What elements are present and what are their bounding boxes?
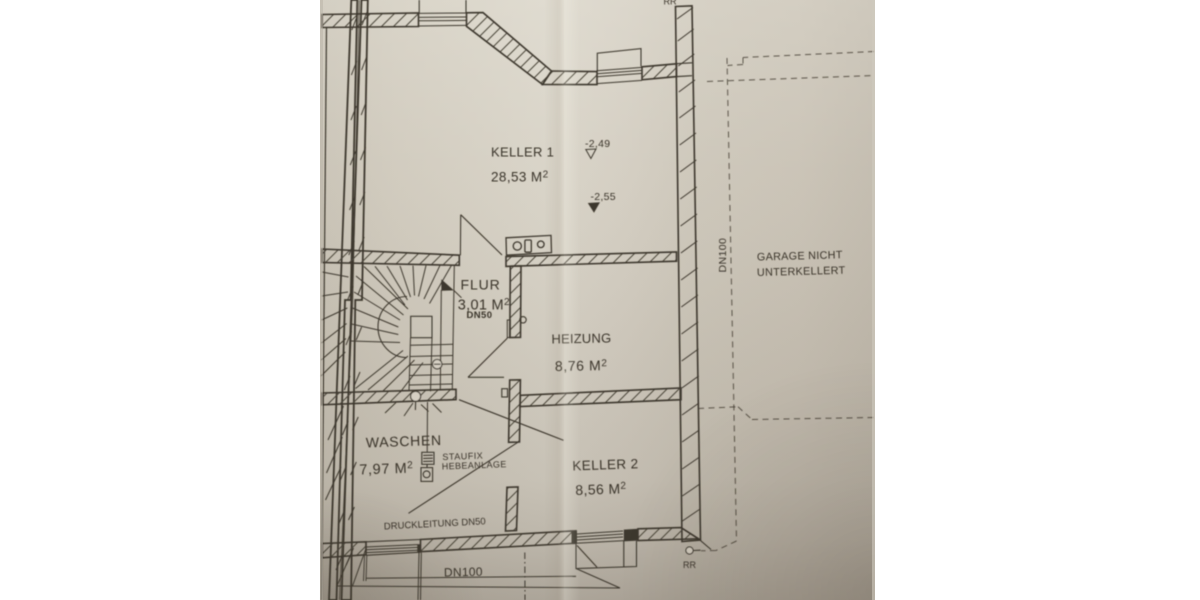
svg-text:7,97 M2: 7,97 M2	[359, 460, 414, 478]
svg-text:GARAGE NICHT: GARAGE NICHT	[757, 249, 843, 263]
svg-text:WASCHEN: WASCHEN	[366, 432, 442, 451]
svg-text:28,53 M2: 28,53 M2	[491, 170, 549, 185]
svg-text:-2,49: -2,49	[585, 138, 610, 150]
svg-text:-2,55: -2,55	[591, 191, 616, 203]
svg-text:8,56 M2: 8,56 M2	[575, 480, 627, 498]
svg-text:UNTERKELLERT: UNTERKELLERT	[757, 265, 846, 279]
svg-text:DN100: DN100	[717, 238, 729, 273]
svg-text:DN50: DN50	[467, 310, 493, 321]
svg-text:FLUR: FLUR	[461, 277, 501, 293]
svg-text:KELLER 1: KELLER 1	[491, 145, 554, 160]
svg-text:RR: RR	[664, 0, 677, 7]
svg-text:KELLER 2: KELLER 2	[572, 456, 639, 473]
